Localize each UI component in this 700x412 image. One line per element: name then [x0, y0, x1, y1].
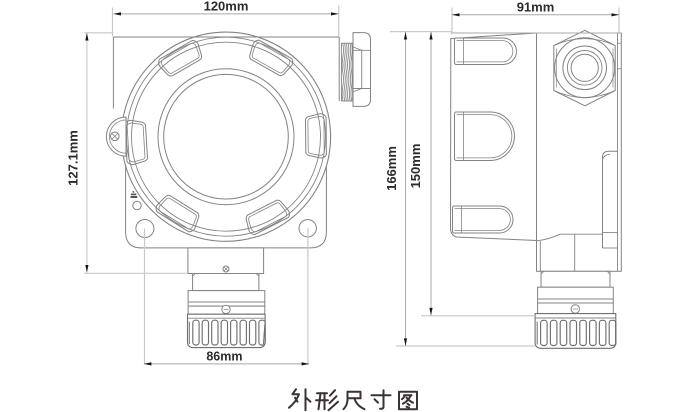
svg-text:150mm: 150mm [408, 144, 423, 189]
svg-text:86mm: 86mm [206, 350, 242, 364]
svg-text:127.1mm: 127.1mm [66, 130, 81, 186]
svg-text:166mm: 166mm [384, 146, 399, 191]
svg-text:91mm: 91mm [517, 0, 555, 15]
svg-text:120mm: 120mm [204, 0, 249, 14]
